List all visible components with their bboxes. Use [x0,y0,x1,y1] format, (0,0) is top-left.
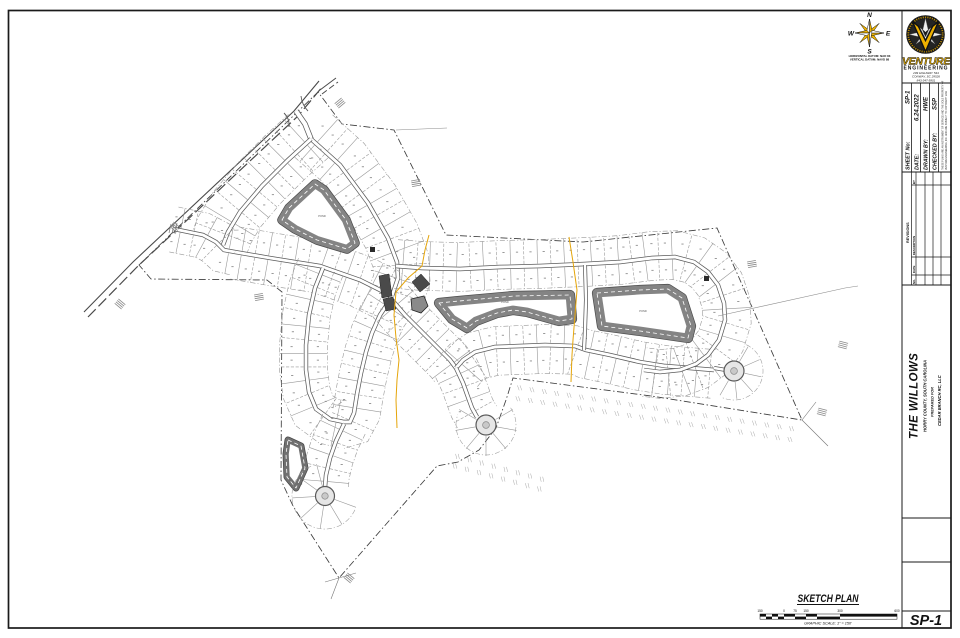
svg-text:VERTICAL DATUM: NAVD 88: VERTICAL DATUM: NAVD 88 [850,58,890,62]
svg-text:E: E [886,31,891,38]
svg-text:DRAWN BY:: DRAWN BY: [924,139,930,170]
svg-text:DATE: DATE [912,265,916,273]
svg-text:BY: BY [912,180,916,184]
svg-text:CEDAR BRANCH RC, LLC: CEDAR BRANCH RC, LLC [937,375,942,426]
svg-text:GRAPHIC SCALE: 1" = 150': GRAPHIC SCALE: 1" = 150' [804,622,852,626]
svg-text:600: 600 [894,609,900,613]
svg-text:PREPARED FOR: PREPARED FOR [931,387,935,417]
svg-text:150: 150 [803,609,809,613]
svg-text:POND: POND [318,214,326,218]
svg-text:NO.: NO. [912,279,916,284]
svg-text:THE WILLOWS: THE WILLOWS [909,353,921,439]
svg-text:POND: POND [639,309,647,313]
svg-text:SKETCH PLAN: SKETCH PLAN [798,593,860,605]
svg-text:150: 150 [757,609,763,613]
svg-text:POND: POND [501,300,509,304]
svg-text:N: N [867,12,872,19]
svg-text:HWE: HWE [924,96,930,111]
svg-text:SHEET No:: SHEET No: [906,141,912,170]
svg-text:SP-1: SP-1 [906,90,912,104]
svg-text:300: 300 [837,609,843,613]
svg-text:VENTURE ENGINEERING, INC. AND: VENTURE ENGINEERING, INC. AND ARE SUBJEC… [945,90,948,170]
svg-text:THESE PLANS ARE AN INSTRUMENT: THESE PLANS ARE AN INSTRUMENT OF SERVICE… [942,80,945,170]
svg-text:REVISIONS: REVISIONS [906,222,910,243]
svg-text:6.24.2022: 6.24.2022 [915,94,921,121]
svg-text:0: 0 [783,609,785,613]
svg-text:75: 75 [793,609,797,613]
svg-text:CHECKED BY:: CHECKED BY: [933,133,939,170]
svg-text:DATE:: DATE: [915,154,921,170]
svg-text:DESCRIPTION: DESCRIPTION [912,236,916,255]
svg-text:843-347-5801: 843-347-5801 [917,78,936,82]
svg-text:SP-1: SP-1 [910,613,942,629]
svg-text:SSP: SSP [933,97,939,110]
svg-text:W: W [848,31,855,38]
svg-text:HORRY COUNTY, SOUTH CAROLINA: HORRY COUNTY, SOUTH CAROLINA [923,360,928,432]
